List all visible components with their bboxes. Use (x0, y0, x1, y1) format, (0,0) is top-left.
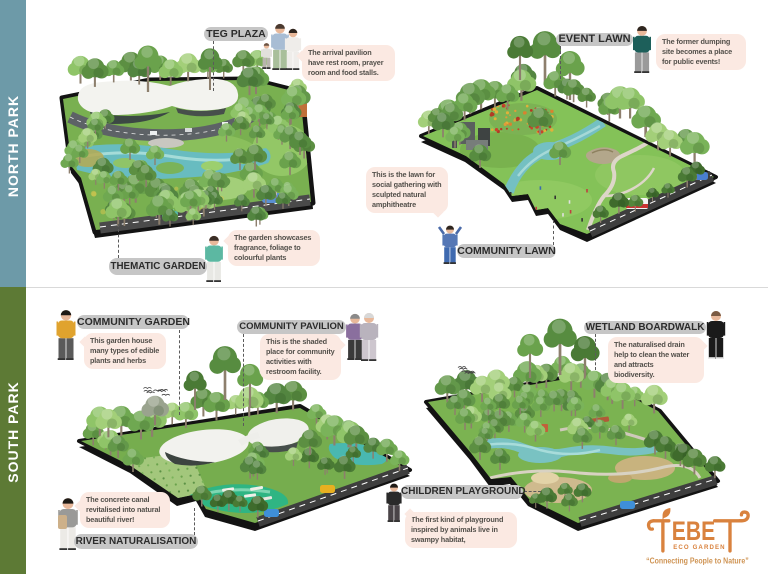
svg-text:ECO GARDEN: ECO GARDEN (673, 544, 724, 551)
svg-text:EBE: EBE (672, 516, 715, 546)
svg-text:“Connecting People to Nature”: “Connecting People to Nature” (646, 556, 749, 566)
